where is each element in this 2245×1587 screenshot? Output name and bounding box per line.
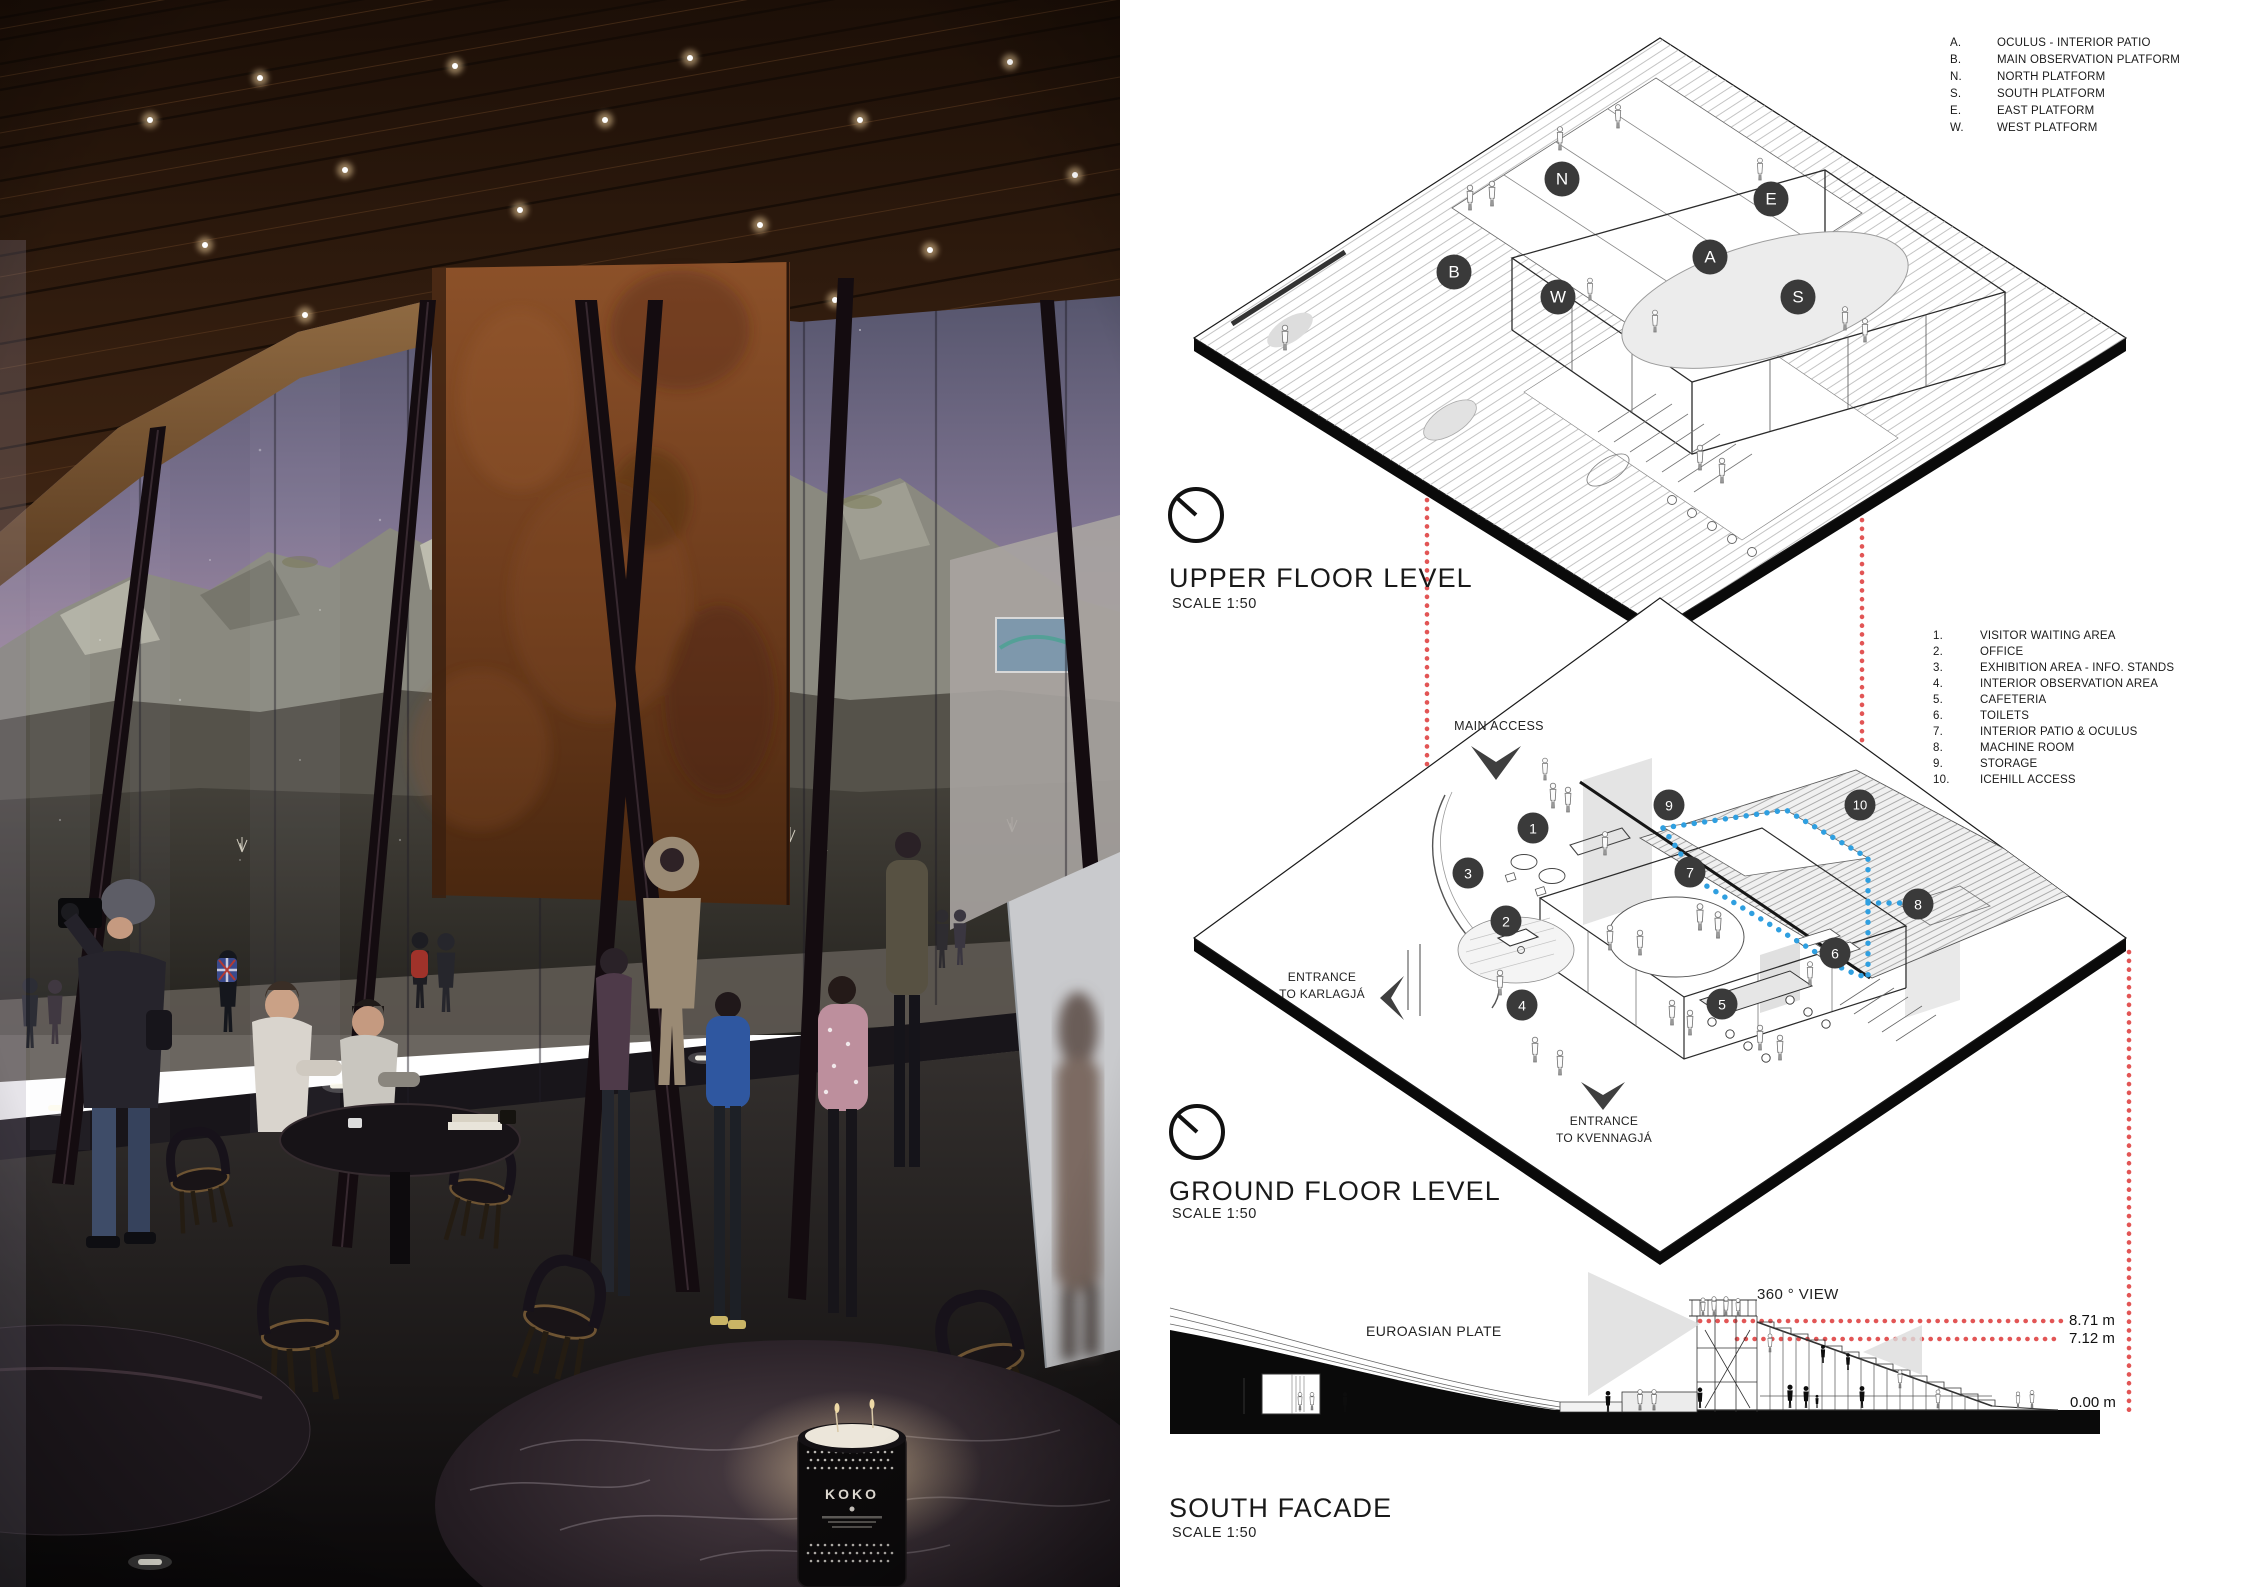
legend-row: N.NORTH PLATFORM <box>1950 71 2180 88</box>
legend-row: S.SOUTH PLATFORM <box>1950 88 2180 105</box>
legend-row: B.MAIN OBSERVATION PLATFORM <box>1950 54 2180 71</box>
legend-row: 1.VISITOR WAITING AREA <box>1933 630 2174 646</box>
legend-label: VISITOR WAITING AREA <box>1980 630 2116 646</box>
legend-key: 10. <box>1933 774 1980 790</box>
legend-row: 2.OFFICE <box>1933 646 2174 662</box>
legend-key: S. <box>1950 88 1997 105</box>
legend-label: INTERIOR OBSERVATION AREA <box>1980 678 2158 694</box>
legend-row: A.OCULUS - INTERIOR PATIO <box>1950 37 2180 54</box>
entrance-karlagja-label: ENTRANCE TO KARLAGJÁ <box>1276 969 1368 1003</box>
legend-key: W. <box>1950 122 1997 139</box>
legend-row: E.EAST PLATFORM <box>1950 105 2180 122</box>
legend-label: NORTH PLATFORM <box>1997 71 2105 88</box>
entrance-karlagja-line2: TO KARLAGJÁ <box>1276 986 1368 1003</box>
legend-key: 2. <box>1933 646 1980 662</box>
legend-row: 7.INTERIOR PATIO & OCULUS <box>1933 726 2174 742</box>
entrance-karlagja-line1: ENTRANCE <box>1276 969 1368 986</box>
interior-rendering <box>0 0 1120 1587</box>
legend-key: B. <box>1950 54 1997 71</box>
legend-label: MACHINE ROOM <box>1980 742 2074 758</box>
ground-floor-title: GROUND FLOOR LEVEL <box>1169 1176 1501 1207</box>
legend-row: 6.TOILETS <box>1933 710 2174 726</box>
legend-key: E. <box>1950 105 1997 122</box>
legend-row: 10.ICEHILL ACCESS <box>1933 774 2174 790</box>
entrance-kvennagja-line2: TO KVENNAGJÁ <box>1550 1130 1658 1147</box>
euroasian-plate-label: EUROASIAN PLATE <box>1366 1323 1502 1339</box>
legend-row: 3.EXHIBITION AREA - INFO. STANDS <box>1933 662 2174 678</box>
legend-key: 9. <box>1933 758 1980 774</box>
legend-label: ICEHILL ACCESS <box>1980 774 2076 790</box>
legend-row: 4.INTERIOR OBSERVATION AREA <box>1933 678 2174 694</box>
legend-row: W.WEST PLATFORM <box>1950 122 2180 139</box>
room-badge-5: 5 <box>1707 989 1738 1020</box>
room-badge-8: 8 <box>1903 889 1934 920</box>
presentation-board: A.OCULUS - INTERIOR PATIO B.MAIN OBSERVA… <box>0 0 2245 1587</box>
legend-label: CAFETERIA <box>1980 694 2046 710</box>
legend-label: EXHIBITION AREA - INFO. STANDS <box>1980 662 2174 678</box>
legend-key: A. <box>1950 37 1997 54</box>
legend-key: 1. <box>1933 630 1980 646</box>
legend-key: 6. <box>1933 710 1980 726</box>
legend-row: 8.MACHINE ROOM <box>1933 742 2174 758</box>
legend-label: OCULUS - INTERIOR PATIO <box>1997 37 2151 54</box>
vignette <box>0 0 1120 1587</box>
upper-plan-legend: A.OCULUS - INTERIOR PATIO B.MAIN OBSERVA… <box>1950 37 2180 139</box>
level-712-label: 7.12 m <box>2069 1330 2115 1347</box>
ground-floor-scale: SCALE 1:50 <box>1172 1206 1257 1222</box>
legend-label: WEST PLATFORM <box>1997 122 2098 139</box>
ground-plan-legend: 1.VISITOR WAITING AREA 2.OFFICE 3.EXHIBI… <box>1933 630 2174 790</box>
room-badge-6: 6 <box>1820 938 1851 969</box>
legend-key: 7. <box>1933 726 1980 742</box>
platform-badge-n: N <box>1545 162 1580 197</box>
legend-key: 3. <box>1933 662 1980 678</box>
level-000-label: 0.00 m <box>2070 1394 2116 1411</box>
legend-key: 5. <box>1933 694 1980 710</box>
platform-badge-e: E <box>1754 182 1789 217</box>
room-badge-2: 2 <box>1491 906 1522 937</box>
room-badge-4: 4 <box>1507 990 1538 1021</box>
legend-key: N. <box>1950 71 1997 88</box>
candle-brand-label: KOKO <box>825 1486 879 1502</box>
legend-label: STORAGE <box>1980 758 2037 774</box>
platform-badge-a: A <box>1693 240 1728 275</box>
upper-floor-title: UPPER FLOOR LEVEL <box>1169 563 1473 594</box>
platform-badge-w: W <box>1541 280 1576 315</box>
legend-key: 4. <box>1933 678 1980 694</box>
legend-label: SOUTH PLATFORM <box>1997 88 2105 105</box>
platform-badge-b: B <box>1437 255 1472 290</box>
entrance-kvennagja-label: ENTRANCE TO KVENNAGJÁ <box>1550 1113 1658 1147</box>
legend-label: INTERIOR PATIO & OCULUS <box>1980 726 2138 742</box>
room-badge-3: 3 <box>1453 858 1484 889</box>
legend-label: OFFICE <box>1980 646 2023 662</box>
south-facade-title: SOUTH FACADE <box>1169 1493 1392 1524</box>
south-facade-scale: SCALE 1:50 <box>1172 1525 1257 1541</box>
room-badge-9: 9 <box>1654 790 1685 821</box>
legend-label: EAST PLATFORM <box>1997 105 2094 122</box>
entrance-kvennagja-line1: ENTRANCE <box>1550 1113 1658 1130</box>
legend-row: 5.CAFETERIA <box>1933 694 2174 710</box>
view-360-label: 360 ° VIEW <box>1757 1286 1839 1303</box>
drawings-board <box>1120 0 2245 1587</box>
legend-row: 9.STORAGE <box>1933 758 2174 774</box>
room-badge-1: 1 <box>1518 813 1549 844</box>
room-badge-10: 10 <box>1845 790 1876 821</box>
level-871-label: 8.71 m <box>2069 1312 2115 1329</box>
room-badge-7: 7 <box>1675 857 1706 888</box>
legend-key: 8. <box>1933 742 1980 758</box>
legend-label: TOILETS <box>1980 710 2029 726</box>
legend-label: MAIN OBSERVATION PLATFORM <box>1997 54 2180 71</box>
upper-floor-scale: SCALE 1:50 <box>1172 596 1257 612</box>
platform-badge-s: S <box>1781 280 1816 315</box>
main-access-label: MAIN ACCESS <box>1443 719 1555 733</box>
